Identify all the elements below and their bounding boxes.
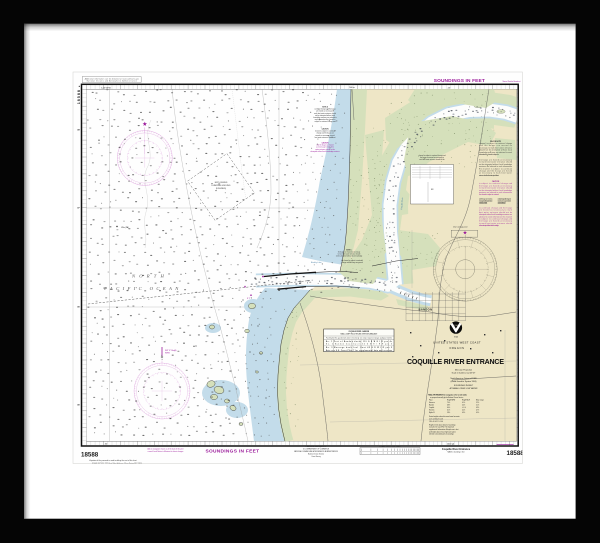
svg-text:WHIS: WHIS xyxy=(165,353,170,355)
svg-text:NORTH: NORTH xyxy=(131,274,168,279)
svg-text:SOUNDINGS IN FEET: SOUNDINGS IN FEET xyxy=(206,448,260,454)
svg-text:500 m: 500 m xyxy=(349,87,355,89)
svg-text:Bradley Lake: Bradley Lake xyxy=(311,262,322,264)
svg-text:COQUILLE RIVER ENTRANCE: COQUILLE RIVER ENTRANCE xyxy=(407,359,504,366)
svg-text:A portion of the proceeds is u: A portion of the proceeds is used to def… xyxy=(90,459,138,462)
svg-text:Wks (PA): Wks (PA) xyxy=(121,226,129,229)
svg-text:(DISUSED): (DISUSED) xyxy=(216,188,227,190)
svg-text:(World Geodetic System 1984): (World Geodetic System 1984) xyxy=(451,380,477,383)
svg-text:18588: 18588 xyxy=(81,451,99,458)
svg-text:Coquille: Coquille xyxy=(429,407,434,409)
svg-text:R "2": R "2" xyxy=(247,298,251,300)
svg-text:Coquille River Entrance: Coquille River Entrance xyxy=(442,448,471,451)
svg-text:18588: 18588 xyxy=(507,450,525,457)
svg-text:18588: 18588 xyxy=(77,89,81,104)
svg-text:1000 yd: 1000 yd xyxy=(447,444,454,446)
svg-text:BANDON: BANDON xyxy=(419,308,433,312)
svg-text:RW "K" Mo(A): RW "K" Mo(A) xyxy=(165,349,177,352)
svg-text:EXPLOSIVES: EXPLOSIVES xyxy=(215,182,228,184)
svg-text:UNITED STATES WEST COAST: UNITED STATES WEST COAST xyxy=(433,340,481,344)
svg-text:OREGON: OREGON xyxy=(449,347,464,350)
svg-text:Mercator Projection: Mercator Projection xyxy=(455,368,472,371)
svg-text:SOUNDINGS IN FEET: SOUNDINGS IN FEET xyxy=(454,385,474,387)
svg-text:Mean range: Mean range xyxy=(476,399,484,401)
svg-text:North American Datum of 1983: North American Datum of 1983 xyxy=(451,377,477,380)
svg-text:AT MEAN LOWER LOW WATER: AT MEAN LOWER LOW WATER xyxy=(450,387,478,390)
svg-text:SOUNDINGS IN FEET: SOUNDINGS IN FEET xyxy=(434,78,486,84)
svg-text:Scale 1:15,000 at Lat 43°07': Scale 1:15,000 at Lat 43°07' xyxy=(452,372,476,375)
svg-text:NOTE C: NOTE C xyxy=(346,250,351,252)
svg-text:124°26'W: 124°26'W xyxy=(101,87,111,89)
svg-text:DUMPING GROUND: DUMPING GROUND xyxy=(212,185,231,187)
svg-text:Bandon: Bandon xyxy=(429,405,434,407)
svg-text:Place: Place xyxy=(429,399,433,401)
svg-text:PACIFIC OCEAN: PACIFIC OCEAN xyxy=(103,286,181,291)
